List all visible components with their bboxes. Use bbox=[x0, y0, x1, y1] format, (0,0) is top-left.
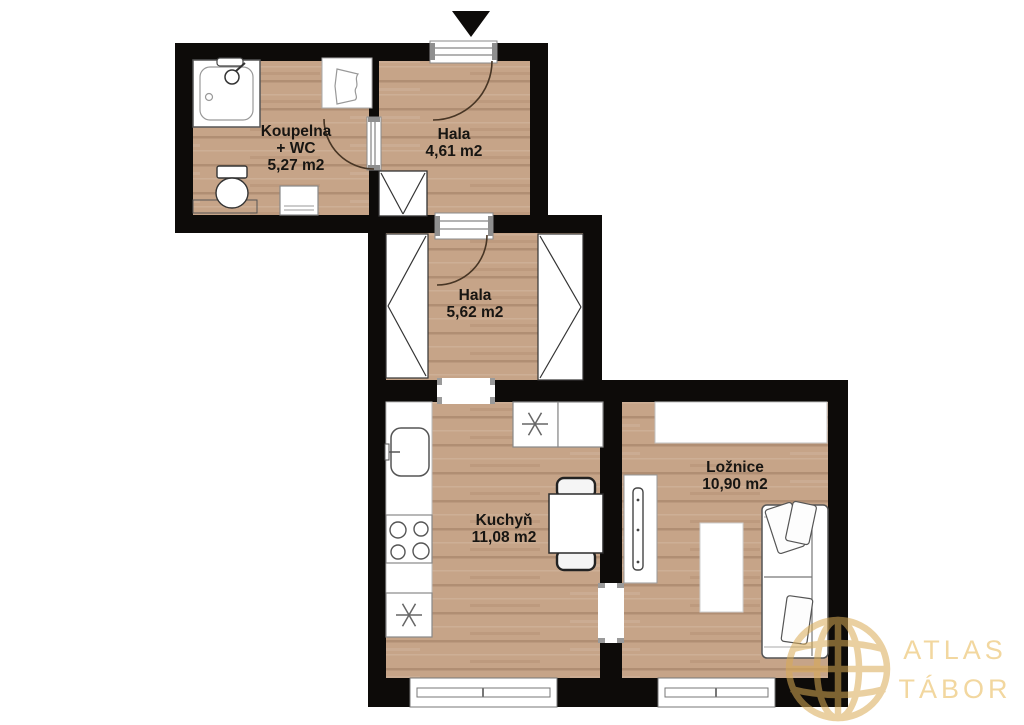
entrance-arrow-icon bbox=[452, 11, 490, 37]
wall bbox=[369, 170, 379, 215]
kitchen-sink bbox=[385, 428, 429, 476]
label-loznice-area: 10,90 m2 bbox=[702, 476, 768, 493]
floor-plan-page: Koupelna + WC 5,27 m2 Hala 4,61 m2 Hala … bbox=[0, 0, 1024, 725]
label-hala-mid-area: 5,62 m2 bbox=[447, 304, 504, 321]
label-hala-top-area: 4,61 m2 bbox=[426, 143, 483, 160]
bedroom-wardrobe bbox=[655, 402, 827, 443]
label-kuchyn-name: Kuchyň bbox=[476, 512, 533, 529]
faucet bbox=[385, 444, 389, 460]
sofa bbox=[762, 501, 828, 658]
watermark-logo: ATLAS TÁBOR bbox=[789, 620, 1012, 718]
wall bbox=[530, 43, 548, 233]
label-kuchyn-area: 11,08 m2 bbox=[472, 529, 537, 546]
label-koupelna-name: Koupelna bbox=[261, 123, 332, 140]
shower-head bbox=[225, 70, 239, 84]
wardrobe-right bbox=[538, 234, 583, 380]
watermark-line1: ATLAS bbox=[903, 635, 1007, 665]
table bbox=[549, 494, 603, 553]
kitchen-cabinet bbox=[558, 402, 603, 447]
coffee-table bbox=[700, 523, 743, 612]
floor-plan-svg: Koupelna + WC 5,27 m2 Hala 4,61 m2 Hala … bbox=[0, 0, 1024, 725]
washbasin bbox=[322, 58, 372, 108]
kuchyn-window bbox=[410, 678, 557, 707]
tv-stand bbox=[624, 475, 657, 583]
wall bbox=[368, 380, 437, 402]
freezer bbox=[513, 402, 603, 447]
hala-top-closet bbox=[379, 171, 427, 216]
wall bbox=[368, 215, 386, 707]
kuchyn-opening bbox=[437, 378, 495, 404]
wall bbox=[557, 678, 658, 707]
label-loznice-name: Ložnice bbox=[706, 459, 764, 476]
fridge bbox=[386, 593, 432, 637]
watermark-line2: TÁBOR bbox=[898, 674, 1011, 704]
wall bbox=[583, 215, 602, 380]
label-koupelna-area: 5,27 m2 bbox=[268, 157, 325, 174]
wardrobe-left bbox=[386, 234, 428, 378]
loznice-opening bbox=[598, 583, 624, 643]
globe-icon bbox=[789, 620, 887, 718]
wall bbox=[175, 43, 193, 233]
label-koupelna-name2: + WC bbox=[276, 140, 315, 157]
shower bbox=[193, 58, 260, 127]
wall bbox=[175, 43, 430, 61]
wall bbox=[495, 380, 848, 402]
wall bbox=[175, 215, 435, 233]
wall bbox=[368, 678, 410, 707]
label-hala-mid-name: Hala bbox=[459, 287, 492, 304]
label-hala-top-name: Hala bbox=[438, 126, 471, 143]
stove bbox=[386, 515, 432, 563]
washing-machine bbox=[280, 186, 318, 215]
loznice-window bbox=[658, 678, 775, 707]
dining-set bbox=[549, 478, 603, 570]
